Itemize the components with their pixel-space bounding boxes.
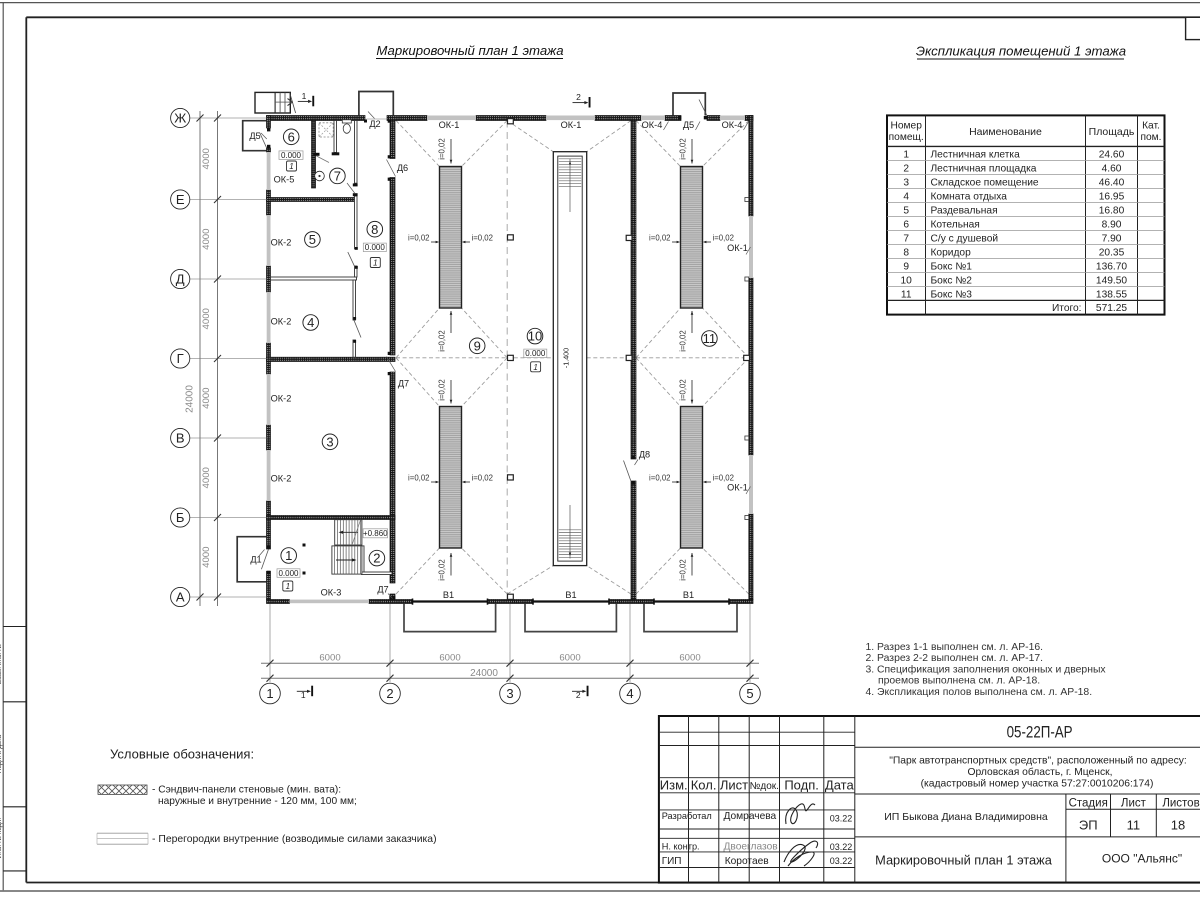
svg-text:3: 3 [326, 434, 333, 449]
svg-text:Ж: Ж [174, 111, 186, 126]
svg-text:Бокс №1: Бокс №1 [931, 261, 973, 272]
svg-text:5: 5 [903, 205, 909, 216]
svg-text:Раздевальная: Раздевальная [931, 205, 998, 216]
svg-text:Подп.: Подп. [784, 778, 819, 793]
svg-text:18: 18 [1171, 818, 1185, 833]
svg-text:Д2: Д2 [369, 119, 380, 129]
svg-text:ЭП: ЭП [1079, 818, 1098, 833]
svg-text:4.60: 4.60 [1102, 163, 1122, 174]
svg-text:2: 2 [903, 163, 909, 174]
svg-text:-1.400: -1.400 [562, 348, 571, 368]
svg-text:В1: В1 [443, 590, 454, 600]
svg-text:4000: 4000 [201, 308, 212, 329]
svg-text:Д5: Д5 [683, 120, 694, 130]
svg-text:4000: 4000 [201, 467, 212, 488]
svg-text:ОК-2: ОК-2 [271, 238, 292, 248]
svg-text:4000: 4000 [201, 547, 212, 568]
svg-text:3: 3 [903, 177, 909, 188]
svg-text:0.000: 0.000 [278, 569, 299, 578]
svg-text:2. Разрез 2-2 выполнен см. л.: 2. Разрез 2-2 выполнен см. л. АР-17. [866, 653, 1044, 664]
svg-text:Итого:: Итого: [1052, 303, 1082, 314]
svg-text:Д: Д [176, 272, 185, 287]
svg-text:i=0,02: i=0,02 [408, 234, 429, 243]
svg-text:ОК-1: ОК-1 [727, 483, 748, 493]
svg-text:1: 1 [903, 149, 909, 160]
svg-text:i=0,02: i=0,02 [679, 138, 688, 159]
svg-text:- Сэндвич-панели стеновые (мин: - Сэндвич-панели стеновые (мин. вата): [152, 785, 341, 796]
svg-text:4: 4 [903, 191, 909, 202]
svg-text:Лист: Лист [720, 778, 748, 793]
svg-text:ОК-2: ОК-2 [271, 394, 292, 404]
svg-text:i=0,02: i=0,02 [438, 379, 447, 400]
svg-text:ОК-2: ОК-2 [271, 474, 292, 484]
svg-text:i=0,02: i=0,02 [649, 474, 670, 483]
svg-text:Двоеглазов: Двоеглазов [724, 842, 778, 853]
svg-text:"Парк автотранспортных средств: "Парк автотранспортных средств", располо… [889, 756, 1187, 767]
svg-text:5: 5 [309, 232, 316, 247]
svg-text:11: 11 [901, 289, 912, 300]
svg-text:24000: 24000 [470, 668, 498, 679]
svg-text:В1: В1 [565, 590, 576, 600]
svg-text:- Перегородки внутренние (возв: - Перегородки внутренние (возводимые сил… [152, 834, 437, 845]
svg-text:(кадастровый номер участка 57:: (кадастровый номер участка 57:27:0010206… [921, 778, 1154, 789]
svg-text:Котельная: Котельная [931, 219, 980, 230]
svg-text:Д7: Д7 [398, 379, 409, 389]
svg-text:1: 1 [302, 91, 307, 101]
svg-text:Площадь: Площадь [1089, 126, 1135, 138]
svg-text:i=0,02: i=0,02 [679, 330, 688, 351]
svg-text:7.90: 7.90 [1102, 233, 1122, 244]
svg-text:В: В [176, 431, 185, 446]
svg-text:4. Экспликация полов выполнена: 4. Экспликация полов выполнена см. л. АР… [866, 687, 1093, 698]
svg-text:11: 11 [1127, 818, 1141, 833]
svg-text:46.40: 46.40 [1099, 177, 1125, 188]
svg-text:11: 11 [703, 331, 717, 346]
svg-text:1. Разрез 1-1 выполнен см. л.: 1. Разрез 1-1 выполнен см. л. АР-16. [866, 642, 1044, 653]
svg-text:ОК-1: ОК-1 [561, 120, 582, 130]
svg-text:Кат.: Кат. [1142, 121, 1160, 132]
svg-text:3. Спецификация заполнения око: 3. Спецификация заполнения оконных и две… [866, 663, 1107, 675]
svg-text:№док.: №док. [750, 781, 779, 792]
svg-text:Д7: Д7 [377, 584, 388, 594]
svg-text:Дата: Дата [825, 778, 855, 793]
svg-text:4000: 4000 [201, 148, 212, 169]
svg-text:проемов выполнена см. л. АР-18: проемов выполнена см. л. АР-18. [878, 676, 1040, 687]
svg-text:i=0,02: i=0,02 [713, 234, 734, 243]
svg-text:05-22П-АР: 05-22П-АР [1007, 724, 1073, 742]
svg-text:4: 4 [626, 686, 633, 701]
svg-text:2: 2 [373, 551, 380, 566]
svg-text:ОК-1: ОК-1 [727, 243, 748, 253]
svg-text:наружные и внутренние - 120 мм: наружные и внутренние - 120 мм, 100 мм; [158, 796, 357, 807]
svg-text:Д5: Д5 [249, 131, 260, 141]
svg-text:0.000: 0.000 [525, 349, 546, 358]
svg-text:571.25: 571.25 [1096, 303, 1127, 314]
svg-text:Инв. № подл.: Инв. № подл. [0, 818, 3, 859]
svg-text:Д8: Д8 [639, 450, 650, 460]
svg-text:ОК-4: ОК-4 [722, 120, 743, 130]
svg-text:Листов: Листов [1162, 798, 1199, 810]
svg-text:4: 4 [307, 315, 314, 330]
svg-text:1: 1 [289, 162, 293, 171]
svg-text:ГИП: ГИП [662, 856, 682, 867]
svg-text:Условные обозначения:: Условные обозначения: [110, 747, 254, 762]
svg-text:Д1: Д1 [250, 555, 261, 565]
svg-text:А: А [176, 590, 185, 605]
svg-text:149.50: 149.50 [1096, 275, 1127, 286]
svg-text:Лестничная клетка: Лестничная клетка [931, 149, 1021, 160]
svg-text:136.70: 136.70 [1096, 261, 1127, 272]
svg-text:16.80: 16.80 [1099, 205, 1125, 216]
svg-text:Складское помещение: Складское помещение [931, 177, 1039, 188]
svg-text:6000: 6000 [439, 652, 460, 663]
svg-text:20.35: 20.35 [1099, 247, 1125, 258]
svg-text:Разработал: Разработал [662, 811, 712, 821]
svg-text:Наименование: Наименование [969, 126, 1042, 138]
svg-text:i=0,02: i=0,02 [679, 379, 688, 400]
svg-text:Стадия: Стадия [1069, 798, 1108, 810]
svg-text:Орловская область, г. Мценск,: Орловская область, г. Мценск, [968, 766, 1113, 778]
svg-text:С/у с душевой: С/у с душевой [931, 233, 999, 244]
svg-text:i=0,02: i=0,02 [408, 474, 429, 483]
svg-text:i=0,02: i=0,02 [438, 138, 447, 159]
svg-text:24.60: 24.60 [1099, 149, 1125, 160]
svg-text:8: 8 [371, 222, 378, 237]
svg-text:2: 2 [576, 92, 581, 102]
svg-text:03.22: 03.22 [830, 842, 853, 852]
svg-text:ООО "Альянс": ООО "Альянс" [1102, 852, 1182, 866]
svg-text:4000: 4000 [201, 229, 212, 250]
svg-text:i=0,02: i=0,02 [713, 474, 734, 483]
svg-text:i=0,02: i=0,02 [438, 559, 447, 580]
svg-text:7: 7 [334, 169, 341, 184]
svg-text:Коридор: Коридор [931, 247, 972, 258]
svg-text:1: 1 [285, 548, 292, 563]
svg-text:Лестничная площадка: Лестничная площадка [931, 163, 1037, 174]
svg-text:3: 3 [506, 686, 513, 701]
svg-text:ОК-3: ОК-3 [321, 587, 342, 597]
svg-text:10: 10 [901, 275, 913, 286]
svg-text:Д6: Д6 [397, 163, 408, 173]
svg-text:6000: 6000 [679, 652, 700, 663]
svg-text:пом.: пом. [1140, 132, 1161, 143]
svg-text:Взам. инв. №: Взам. инв. № [0, 644, 3, 684]
svg-text:Лист: Лист [1121, 798, 1147, 810]
svg-text:6000: 6000 [319, 652, 340, 663]
svg-text:2: 2 [386, 686, 393, 701]
svg-text:Изм.: Изм. [660, 778, 688, 793]
svg-text:i=0,02: i=0,02 [649, 234, 670, 243]
svg-text:8: 8 [903, 247, 909, 258]
svg-text:ИП Быкова Диана Владимировна: ИП Быкова Диана Владимировна [884, 811, 1048, 823]
svg-text:ОК-2: ОК-2 [271, 317, 292, 327]
svg-text:Бокс №3: Бокс №3 [931, 289, 973, 300]
svg-text:i=0,02: i=0,02 [438, 330, 447, 351]
svg-text:Б: Б [176, 510, 185, 525]
svg-text:0.000: 0.000 [365, 243, 386, 252]
svg-text:ОК-4: ОК-4 [642, 120, 663, 130]
svg-text:24000: 24000 [185, 385, 196, 413]
svg-text:7: 7 [903, 233, 909, 244]
svg-text:ОК-5: ОК-5 [274, 175, 295, 185]
svg-text:6000: 6000 [559, 652, 580, 663]
svg-text:8.90: 8.90 [1102, 219, 1122, 230]
svg-text:ОК-1: ОК-1 [439, 120, 460, 130]
svg-text:10: 10 [528, 329, 542, 344]
svg-text:помещ.: помещ. [889, 132, 924, 143]
svg-text:4000: 4000 [201, 388, 212, 409]
svg-text:03.22: 03.22 [830, 856, 853, 866]
svg-text:1: 1 [266, 686, 273, 701]
svg-text:Домрачева: Домрачева [724, 811, 777, 822]
svg-text:Кол.: Кол. [691, 778, 717, 793]
svg-text:Коротаев: Коротаев [725, 856, 769, 867]
svg-text:i=0,02: i=0,02 [679, 559, 688, 580]
svg-text:Маркировочный план 1 этажа: Маркировочный план 1 этажа [875, 853, 1053, 868]
svg-text:Бокс №2: Бокс №2 [931, 275, 973, 286]
svg-text:Г: Г [177, 351, 184, 366]
svg-text:Экспликация помещений 1 этажа: Экспликация помещений 1 этажа [916, 44, 1126, 59]
svg-text:Маркировочный план 1 этажа: Маркировочный план 1 этажа [376, 43, 563, 58]
svg-text:138.55: 138.55 [1096, 289, 1127, 300]
svg-text:03.22: 03.22 [830, 814, 853, 824]
svg-text:0.000: 0.000 [281, 151, 302, 160]
svg-text:Номер: Номер [891, 121, 923, 132]
svg-text:i=0,02: i=0,02 [472, 474, 493, 483]
svg-text:Н. контр.: Н. контр. [662, 842, 700, 852]
svg-text:9: 9 [903, 261, 909, 272]
svg-text:6: 6 [288, 129, 295, 144]
svg-text:Комната отдыха: Комната отдыха [931, 191, 1008, 202]
svg-text:1: 1 [286, 582, 290, 591]
svg-text:1: 1 [533, 363, 537, 372]
svg-text:В1: В1 [683, 590, 694, 600]
svg-text:i=0,02: i=0,02 [472, 234, 493, 243]
svg-text:9: 9 [474, 338, 481, 353]
svg-text:+0.860: +0.860 [363, 529, 388, 538]
svg-text:1: 1 [373, 259, 377, 268]
svg-text:16.95: 16.95 [1099, 191, 1125, 202]
svg-text:5: 5 [746, 686, 753, 701]
svg-text:Подп. и дата: Подп. и дата [0, 734, 3, 773]
svg-text:6: 6 [903, 219, 909, 230]
svg-text:Е: Е [176, 192, 185, 207]
